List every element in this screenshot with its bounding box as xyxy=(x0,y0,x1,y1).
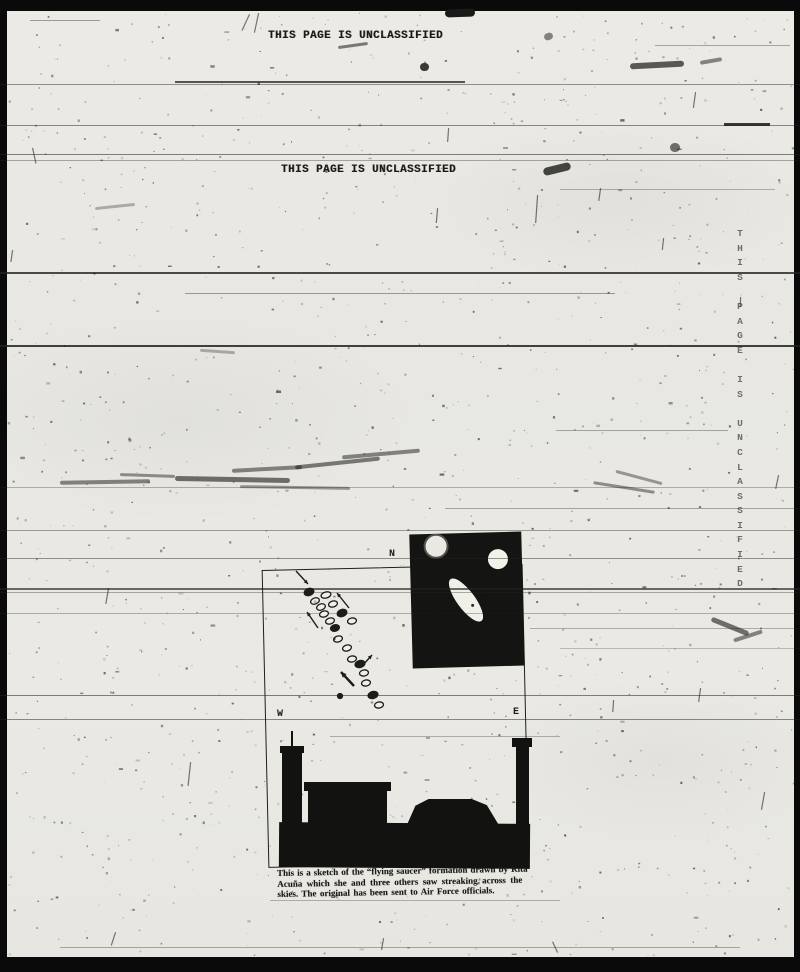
compass-west-label: W xyxy=(277,709,283,720)
vertical-stamp-char: E xyxy=(733,345,747,360)
bright-object-icon xyxy=(488,549,509,570)
vertical-stamp-char: S xyxy=(733,491,747,506)
vertical-stamp-char: E xyxy=(733,564,747,579)
vertical-stamp-char: S xyxy=(733,389,747,404)
vertical-stamp-char: U xyxy=(733,418,747,433)
vertical-stamp-char: S xyxy=(733,505,747,520)
scan-border-top xyxy=(0,0,800,11)
saucer-speck xyxy=(471,604,474,607)
moon-icon xyxy=(423,533,449,559)
scan-border-right xyxy=(794,0,800,972)
pillar-silhouette xyxy=(516,747,529,827)
vertical-stamp-char: T xyxy=(733,228,747,243)
building-base-silhouette xyxy=(279,822,530,869)
vertical-stamp-char: G xyxy=(733,330,747,345)
vertical-stamp-char: C xyxy=(733,447,747,462)
compass-north-label: N xyxy=(389,549,395,560)
night-sky-inset xyxy=(409,532,524,669)
vertical-stamp-char: S xyxy=(733,272,747,287)
vertical-stamp-char: F xyxy=(733,534,747,549)
vertical-stamp-char xyxy=(733,359,747,374)
classification-stamp-second: THIS PAGE IS UNCLASSIFIED xyxy=(281,164,456,176)
scan-border-left xyxy=(0,0,7,972)
classification-stamp-top: THIS PAGE IS UNCLASSIFIED xyxy=(268,30,443,42)
saucer-ellipse-icon xyxy=(443,574,488,627)
scan-border-bottom xyxy=(0,957,800,972)
vertical-stamp-char: P xyxy=(733,301,747,316)
vertical-classification: THIS PAGE IS UNCLASSIFIED xyxy=(733,228,747,593)
vertical-stamp-char xyxy=(733,286,747,301)
compass-east-label: E xyxy=(513,707,519,718)
vertical-stamp-char: I xyxy=(733,520,747,535)
chimney-silhouette xyxy=(282,748,302,828)
vertical-stamp-char xyxy=(733,403,747,418)
vertical-stamp-char: D xyxy=(733,578,747,593)
pillar-cap-silhouette xyxy=(512,738,532,747)
vertical-stamp-char: I xyxy=(733,374,747,389)
vertical-stamp-char: L xyxy=(733,462,747,477)
building-body-silhouette xyxy=(308,789,387,827)
vertical-stamp-char: A xyxy=(733,316,747,331)
newspaper-caption: This is a sketch of the “flying saucer” … xyxy=(277,863,536,899)
vertical-stamp-char: I xyxy=(733,257,747,272)
vertical-stamp-char: H xyxy=(733,243,747,258)
vertical-stamp-char: I xyxy=(733,549,747,564)
vertical-stamp-char: N xyxy=(733,432,747,447)
vertical-stamp-char: A xyxy=(733,476,747,491)
